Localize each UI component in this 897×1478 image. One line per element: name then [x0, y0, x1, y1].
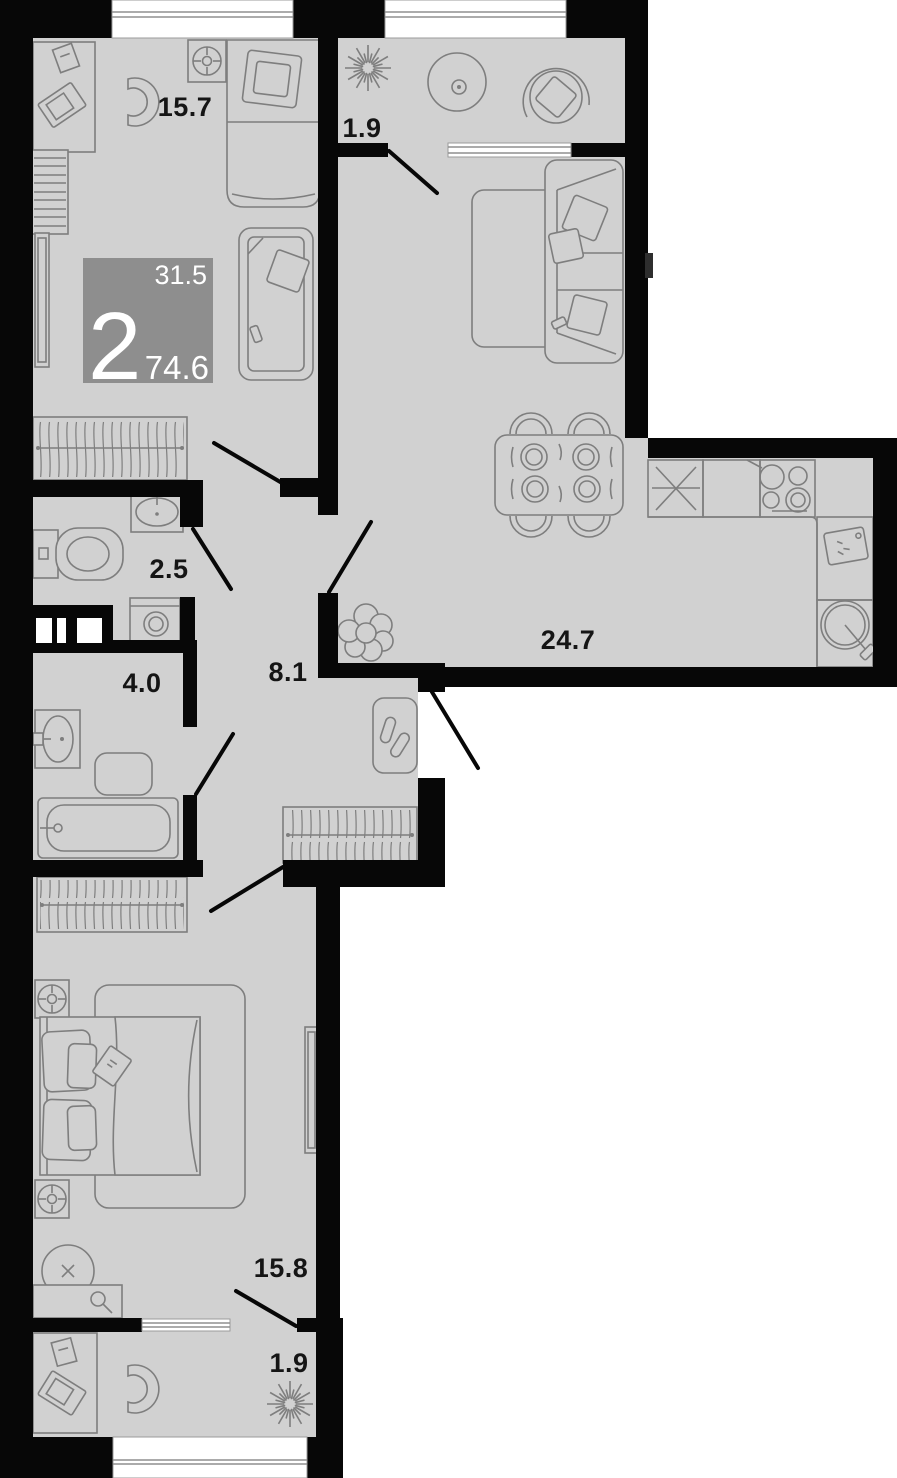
- radiator-mark: [645, 253, 653, 278]
- floor-plan-svg: 15.7 1.9 2.5 4.0 8.1 24.7 15.8 1.9 31.5 …: [0, 0, 897, 1478]
- label-bedroom-top: 15.7: [158, 92, 213, 122]
- single-bed: [227, 40, 320, 207]
- dresser-mirror: [188, 40, 226, 82]
- hall-wardrobe: [283, 807, 417, 863]
- area-badge: 31.5 2 74.6: [83, 258, 213, 400]
- label-kitchen-living: 24.7: [541, 625, 596, 655]
- window-loggia-top: [385, 0, 566, 38]
- bath-sink: [33, 710, 80, 768]
- label-loggia-top: 1.9: [342, 113, 381, 143]
- nightstand-top: [35, 980, 69, 1018]
- nightstand-bottom: [35, 1180, 69, 1218]
- floor-areas: [33, 38, 897, 1437]
- laundry-basket: [95, 753, 152, 795]
- badge-rooms-count: 2: [88, 293, 141, 400]
- badge-total-area: 74.6: [145, 349, 209, 386]
- small-sofa: [239, 228, 313, 380]
- vanity-table: [33, 1285, 122, 1318]
- door-entry: [432, 692, 478, 768]
- washing-machine: [130, 598, 180, 641]
- tall-mirror: [35, 233, 49, 367]
- label-bathroom: 4.0: [122, 668, 161, 698]
- bathtub: [38, 798, 178, 858]
- window-bedroom-bottom: [142, 1319, 230, 1331]
- floor-kitchen: [625, 438, 897, 687]
- round-table: [428, 53, 486, 111]
- window-bedroom-top: [112, 0, 293, 38]
- cutting-board: [824, 527, 869, 565]
- toilet: [33, 528, 123, 580]
- window-loggia-bottom: [113, 1437, 307, 1478]
- floor-plan-page: 15.7 1.9 2.5 4.0 8.1 24.7 15.8 1.9 31.5 …: [0, 0, 897, 1478]
- label-hallway: 8.1: [268, 657, 307, 687]
- sofa: [545, 160, 623, 363]
- wardrobe: [33, 417, 187, 480]
- loggia-glazing: [448, 143, 571, 157]
- label-loggia-bottom: 1.9: [269, 1348, 308, 1378]
- label-bedroom-bottom: 15.8: [254, 1253, 309, 1283]
- shoe-bench: [373, 698, 417, 773]
- shelf-rack: [32, 150, 68, 234]
- label-wc: 2.5: [149, 554, 188, 584]
- double-bed: [40, 1017, 200, 1175]
- wardrobe: [37, 877, 187, 932]
- badge-living-area: 31.5: [154, 260, 207, 290]
